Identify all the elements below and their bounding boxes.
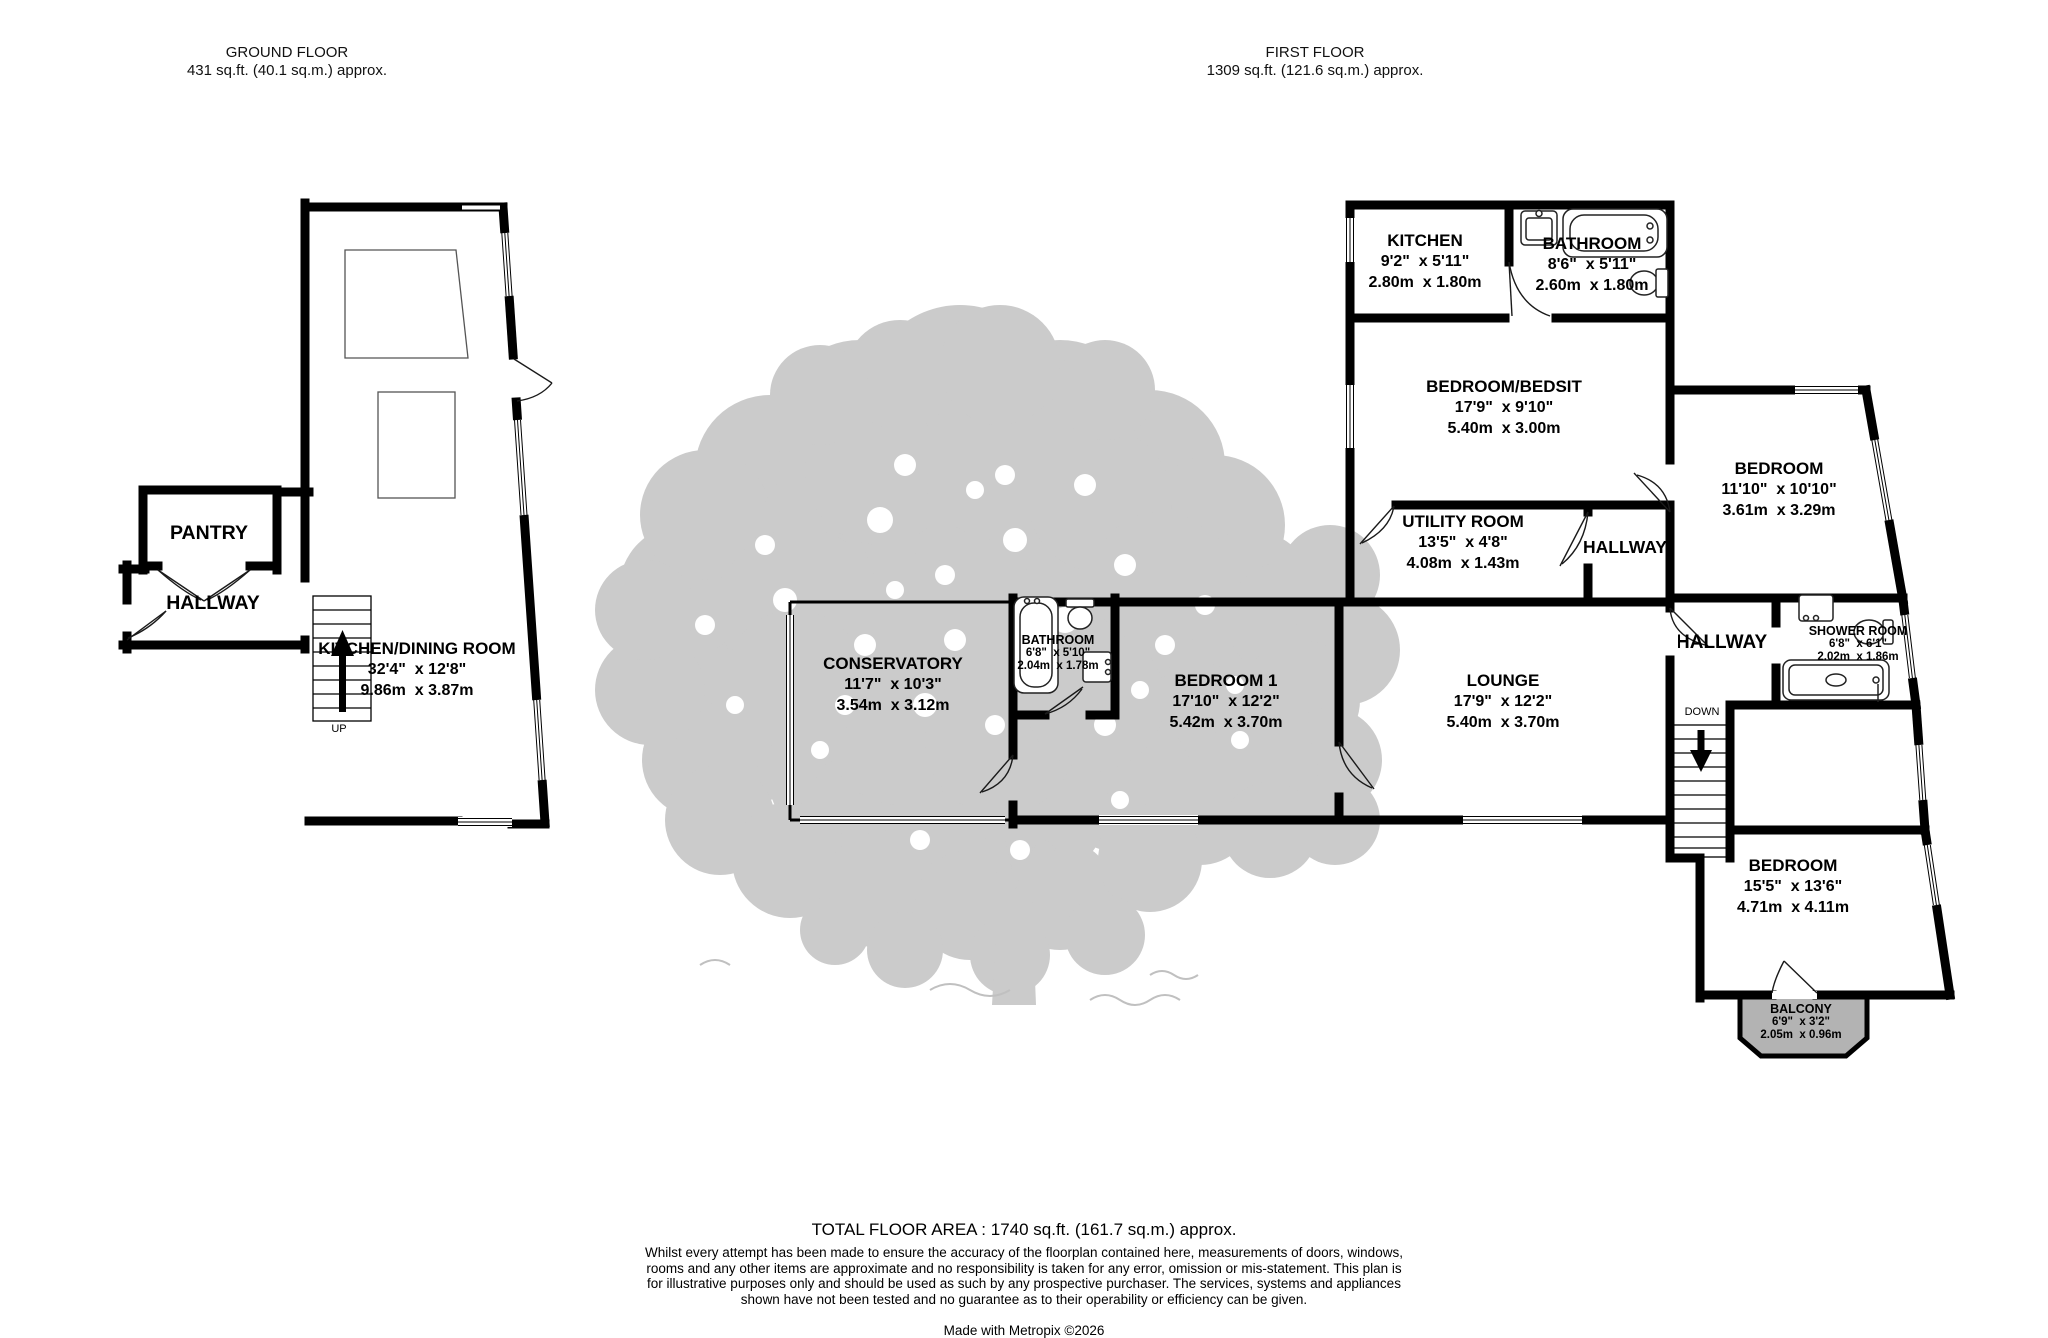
room-label-bedroom-se: BEDROOM 15'5" x 13'6" 4.71m x 4.11m: [1737, 855, 1849, 918]
toilet-main-bathroom: [1066, 599, 1094, 629]
room-label-hallway-ff2: HALLWAY: [1678, 632, 1774, 654]
room-label-kitchen-dining: KITCHEN/DINING ROOM 32'4" x 12'8" 9.86m …: [318, 638, 515, 701]
room-label-bathroom-ff: BATHROOM 8'6" x 5'11" 2.60m x 1.80m: [1536, 233, 1649, 296]
room-label-bathroom-main: BATHROOM 6'8" x 5'10" 2.04m x 1.78m: [1017, 634, 1098, 672]
ground-floor-area: 431 sq.ft. (40.1 sq.m.) approx.: [187, 62, 387, 80]
room-label-bedroom-ne: BEDROOM 11'10" x 10'10" 3.61m x 3.29m: [1721, 458, 1836, 521]
room-label-hallway-gf: HALLWAY: [166, 592, 260, 614]
ground-floor-title: GROUND FLOOR: [187, 44, 387, 62]
room-label-kitchen: KITCHEN 9'2" x 5'11" 2.80m x 1.80m: [1369, 230, 1482, 293]
kitchen-counter: [345, 250, 468, 498]
room-label-pantry: PANTRY: [170, 522, 248, 544]
first-floor-area: 1309 sq.ft. (121.6 sq.m.) approx.: [1207, 62, 1424, 80]
total-floor-area: TOTAL FLOOR AREA : 1740 sq.ft. (161.7 sq…: [812, 1220, 1237, 1240]
disclaimer-text: Whilst every attempt has been made to en…: [639, 1245, 1409, 1307]
first-floor-header: FIRST FLOOR 1309 sq.ft. (121.6 sq.m.) ap…: [1207, 44, 1424, 80]
floorplan-canvas: GROUND FLOOR 431 sq.ft. (40.1 sq.m.) app…: [0, 0, 2048, 1338]
room-label-bedroom-bedsit: BEDROOM/BEDSIT 17'9" x 9'10" 5.40m x 3.0…: [1426, 376, 1582, 439]
stairs-up-label: UP: [331, 723, 346, 735]
room-label-lounge: LOUNGE 17'9" x 12'2" 5.40m x 3.70m: [1447, 670, 1560, 733]
room-label-conservatory: CONSERVATORY 11'7" x 10'3" 3.54m x 3.12m: [823, 653, 963, 716]
room-label-bedroom1: BEDROOM 1 17'10" x 12'2" 5.42m x 3.70m: [1170, 670, 1283, 733]
room-label-shower-room: SHOWER ROOM 6'8" x 6'1" 2.02m x 1.86m: [1809, 625, 1908, 663]
ground-floor-header: GROUND FLOOR 431 sq.ft. (40.1 sq.m.) app…: [187, 44, 387, 80]
bathtub-shower-room: [1783, 660, 1889, 702]
tree-foliage: [595, 305, 1400, 995]
sink-shower-room: [1799, 595, 1833, 621]
first-floor-title: FIRST FLOOR: [1207, 44, 1424, 62]
stairs-down-label: DOWN: [1685, 706, 1720, 718]
room-label-hallway-ff1: HALLWAY: [1583, 537, 1670, 558]
room-label-balcony: BALCONY 6'9" x 3'2" 2.05m x 0.96m: [1760, 1003, 1841, 1041]
room-label-utility: UTILITY ROOM 13'5" x 4'8" 4.08m x 1.43m: [1402, 511, 1524, 574]
metropix-credit: Made with Metropix ©2026: [944, 1323, 1105, 1338]
